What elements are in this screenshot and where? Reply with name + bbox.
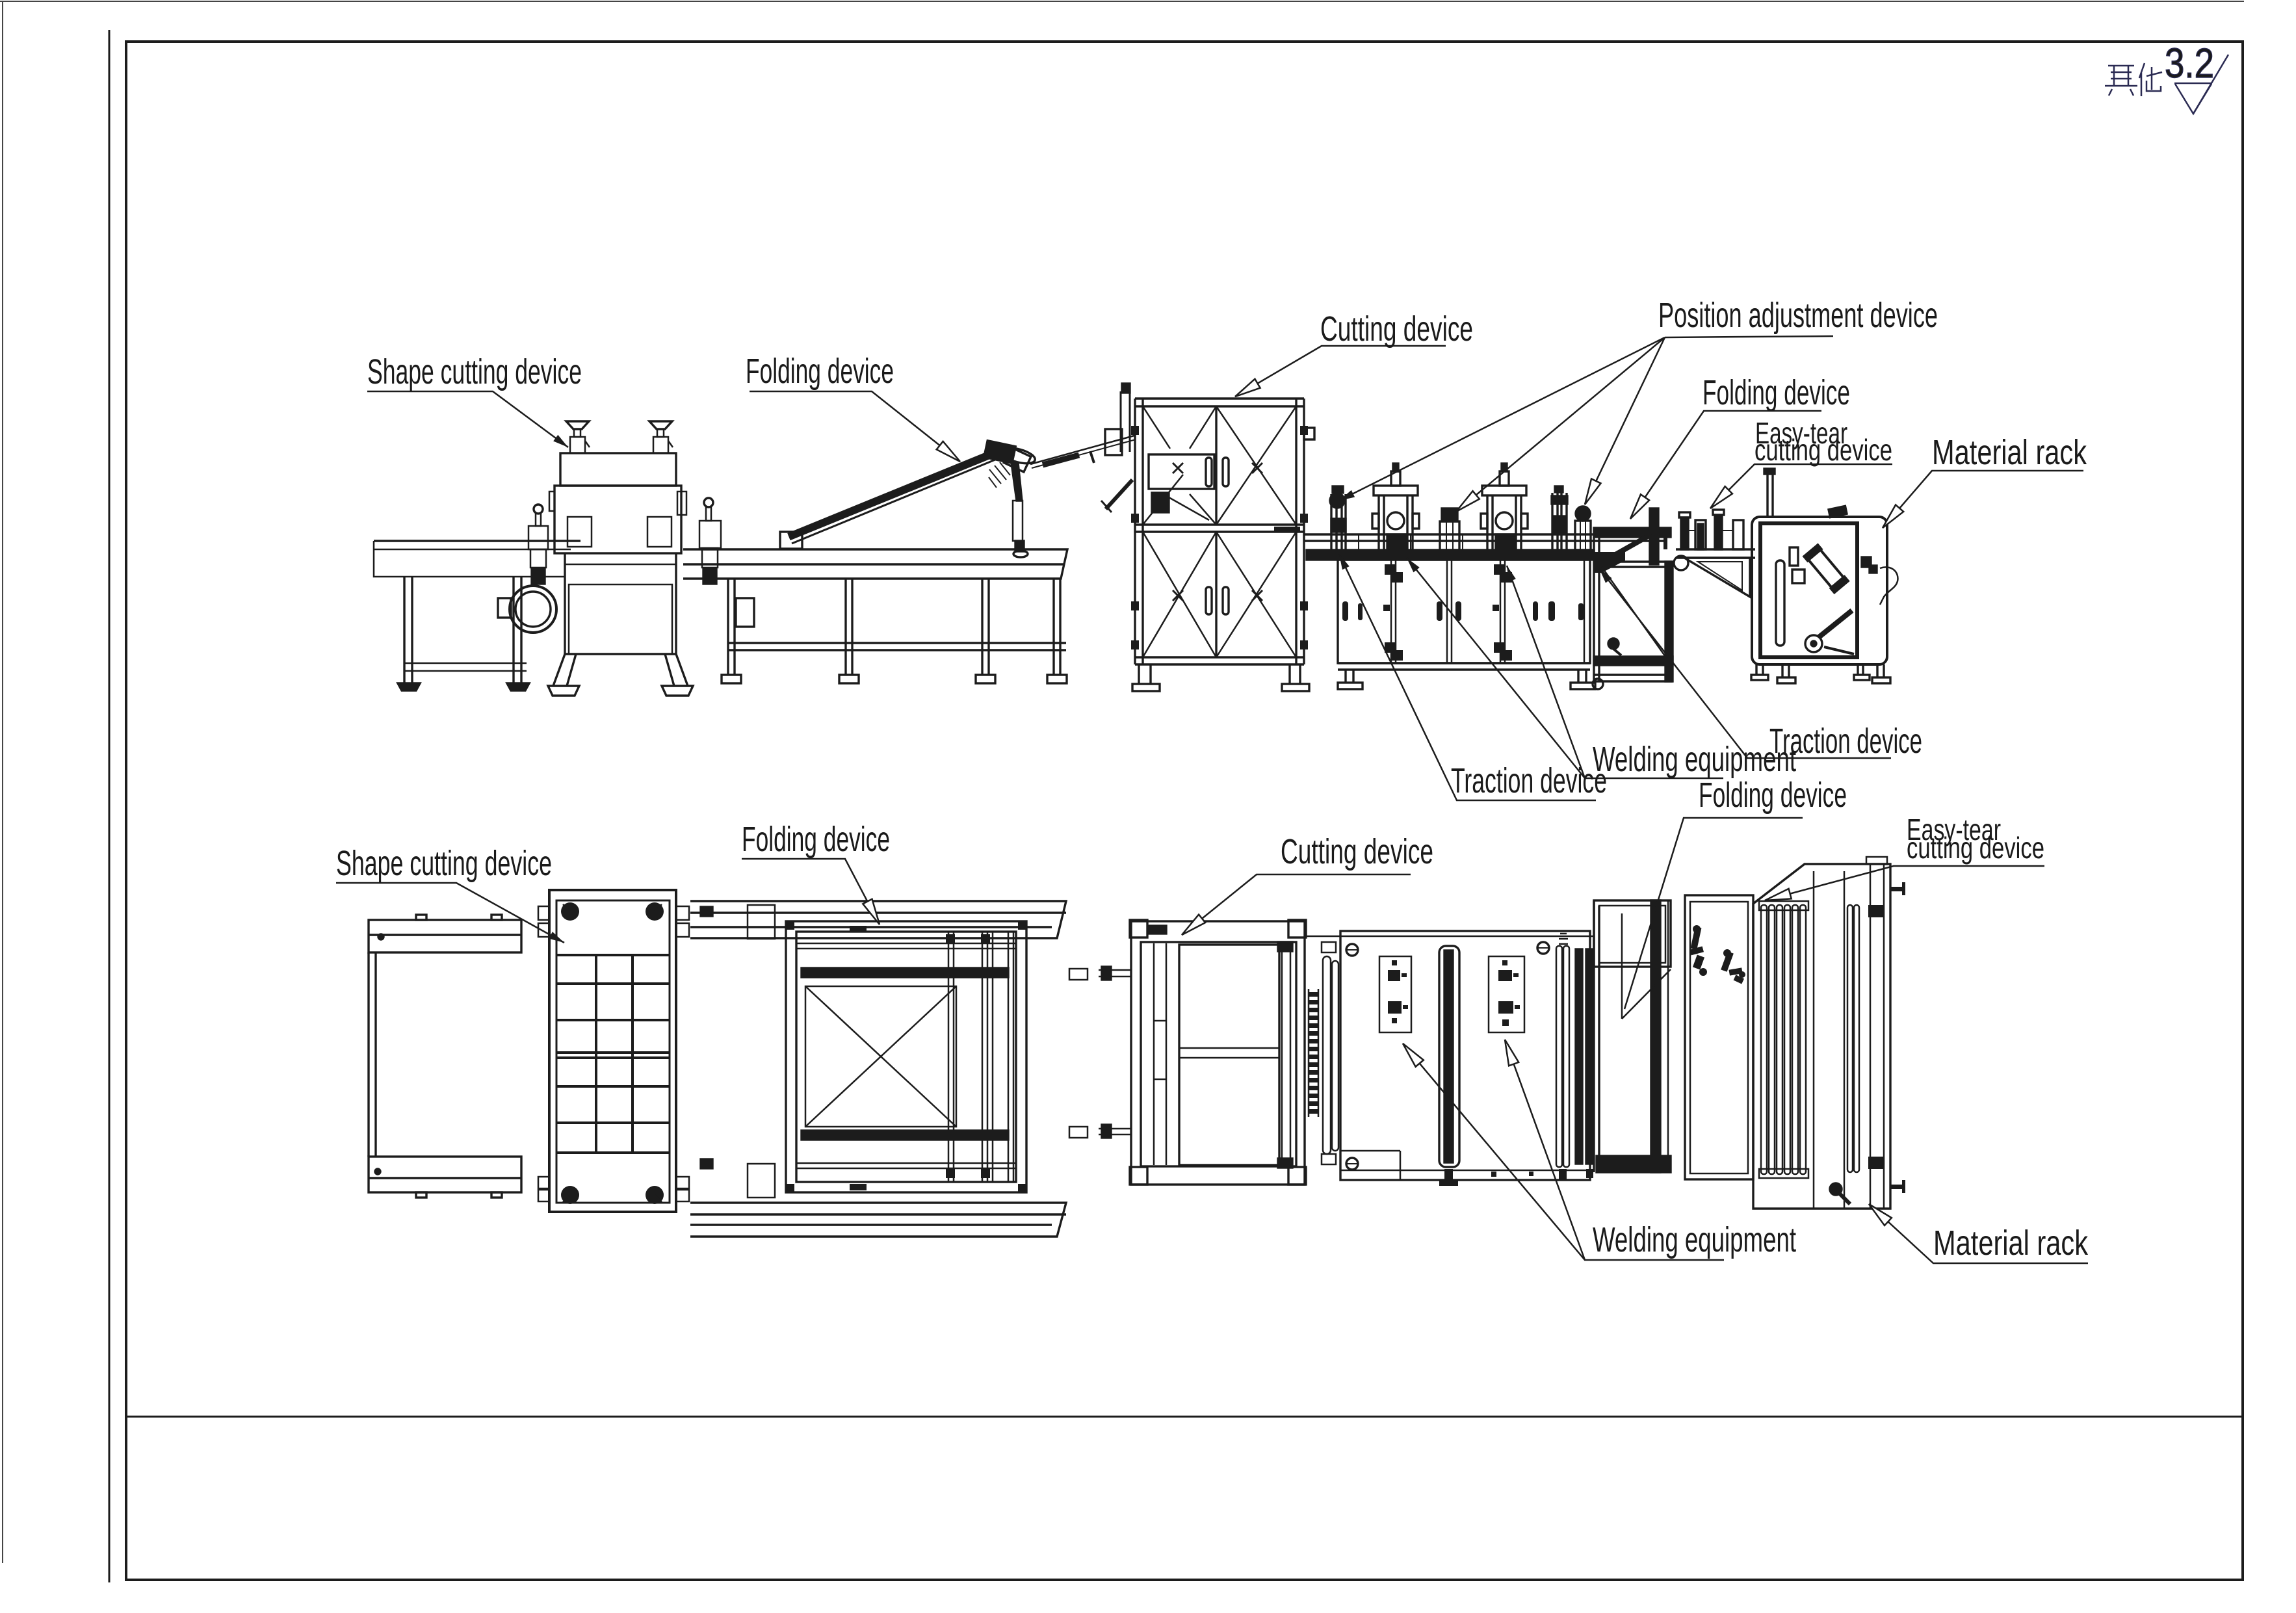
svg-text:Shape cutting device: Shape cutting device — [336, 844, 552, 883]
svg-text:Folding device: Folding device — [742, 820, 890, 859]
svg-text:Material rack: Material rack — [1933, 1224, 2089, 1263]
svg-text:Welding equipment: Welding equipment — [1593, 1220, 1796, 1259]
svg-text:Folding device: Folding device — [1702, 373, 1850, 412]
svg-text:Folding device: Folding device — [746, 352, 894, 391]
svg-text:cutting device: cutting device — [1755, 433, 1892, 467]
svg-text:Material rack: Material rack — [1932, 433, 2087, 472]
svg-text:Cutting device: Cutting device — [1281, 832, 1433, 871]
svg-text:Position adjustment device: Position adjustment device — [1658, 296, 1938, 335]
svg-text:3.2: 3.2 — [2165, 40, 2214, 86]
svg-text:Shape cutting device: Shape cutting device — [367, 352, 582, 391]
svg-text:Welding equipment: Welding equipment — [1593, 740, 1796, 779]
svg-text:Traction device: Traction device — [1451, 761, 1607, 800]
svg-text:Folding device: Folding device — [1699, 776, 1847, 815]
svg-text:Cutting device: Cutting device — [1320, 309, 1473, 348]
svg-text:cutting device: cutting device — [1907, 831, 2044, 865]
